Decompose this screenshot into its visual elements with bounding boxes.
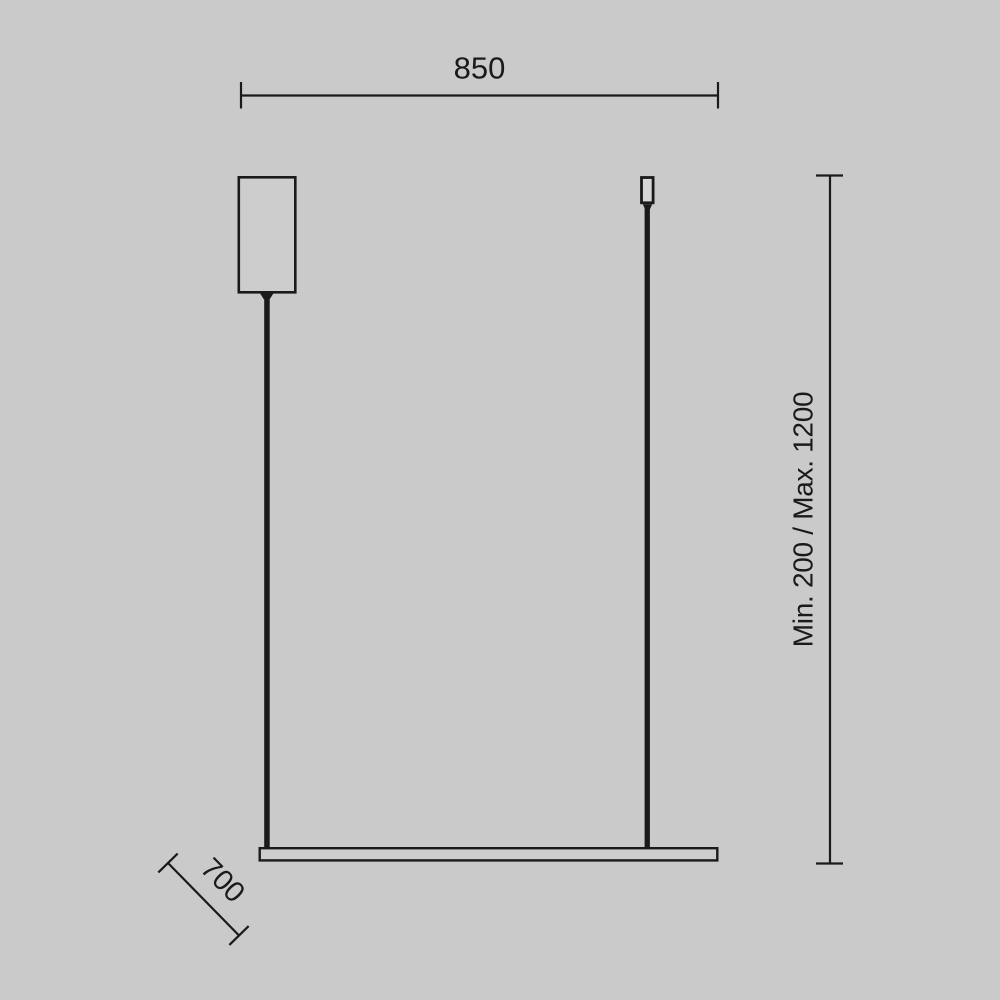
svg-text:850: 850 xyxy=(454,51,506,86)
svg-text:Min. 200 / Max. 1200: Min. 200 / Max. 1200 xyxy=(788,392,819,647)
